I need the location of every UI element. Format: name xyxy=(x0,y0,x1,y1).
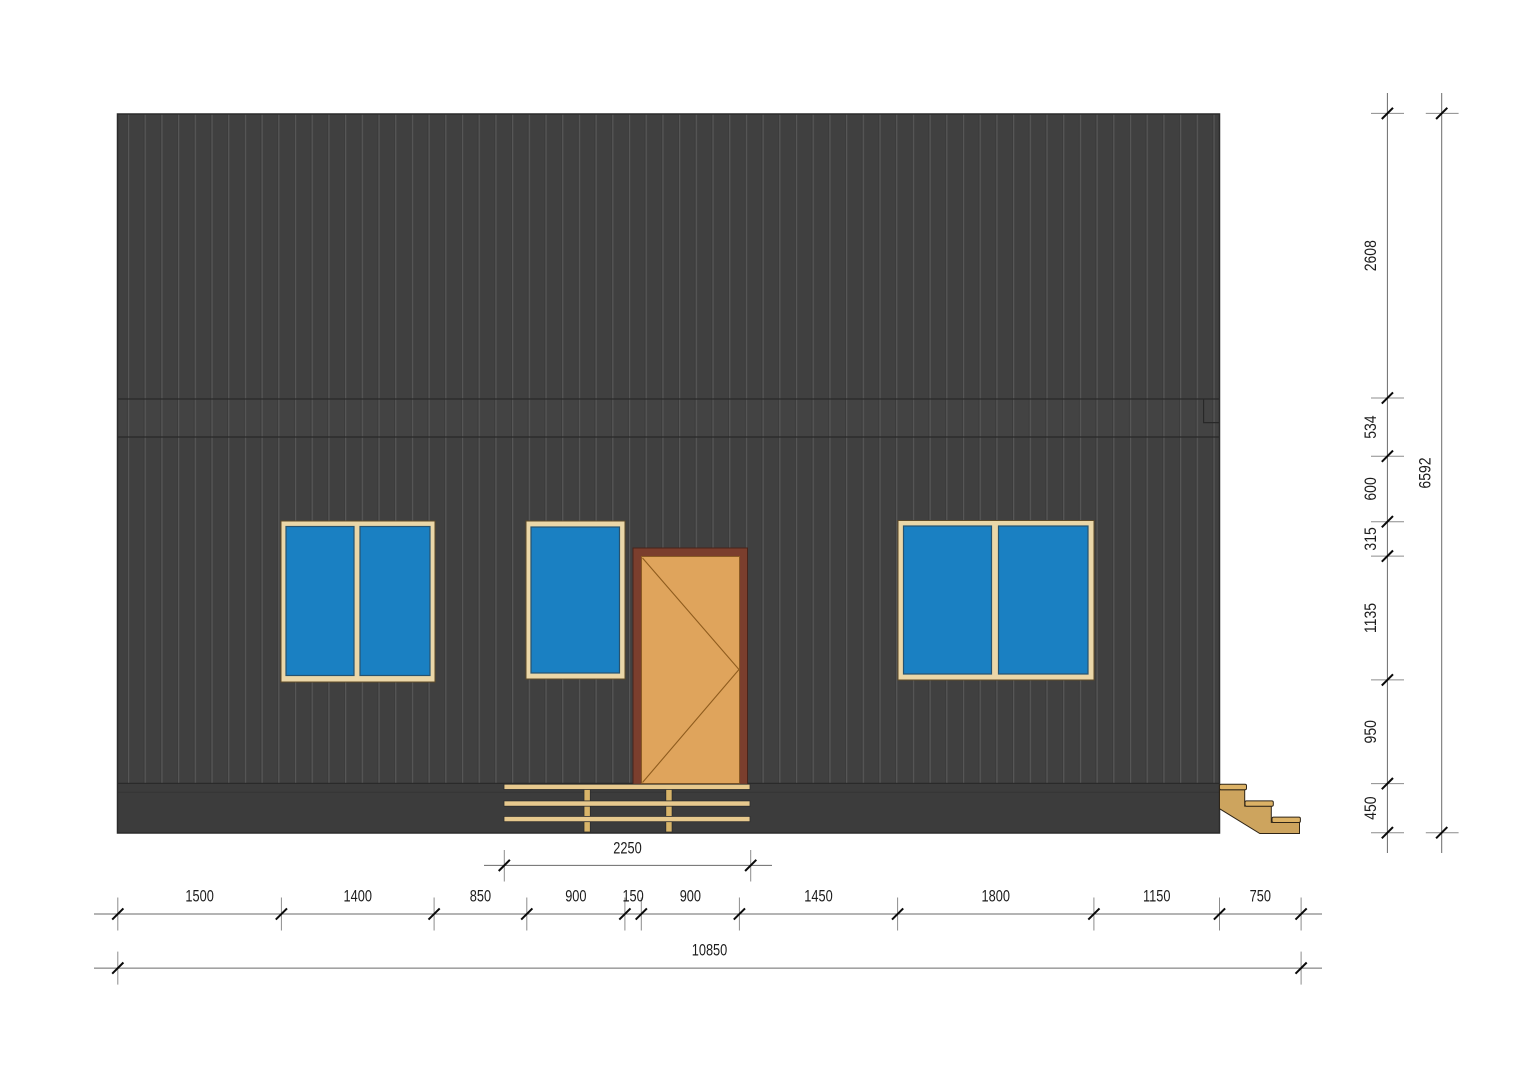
svg-text:150: 150 xyxy=(622,888,643,906)
svg-text:1500: 1500 xyxy=(185,888,213,906)
svg-text:2608: 2608 xyxy=(1362,240,1380,271)
svg-text:1450: 1450 xyxy=(804,888,832,906)
svg-text:950: 950 xyxy=(1362,720,1380,743)
svg-text:450: 450 xyxy=(1362,796,1380,819)
svg-text:600: 600 xyxy=(1362,477,1380,500)
svg-text:10850: 10850 xyxy=(692,942,728,960)
svg-text:2250: 2250 xyxy=(613,840,641,858)
svg-text:900: 900 xyxy=(680,888,701,906)
svg-text:1800: 1800 xyxy=(982,888,1010,906)
svg-text:315: 315 xyxy=(1362,527,1380,550)
svg-text:850: 850 xyxy=(470,888,491,906)
svg-text:750: 750 xyxy=(1250,888,1271,906)
svg-text:6592: 6592 xyxy=(1416,457,1434,488)
svg-text:1135: 1135 xyxy=(1362,603,1380,633)
svg-text:1150: 1150 xyxy=(1143,888,1170,906)
svg-text:900: 900 xyxy=(565,888,586,906)
svg-text:1400: 1400 xyxy=(344,888,372,906)
svg-text:534: 534 xyxy=(1362,415,1380,439)
